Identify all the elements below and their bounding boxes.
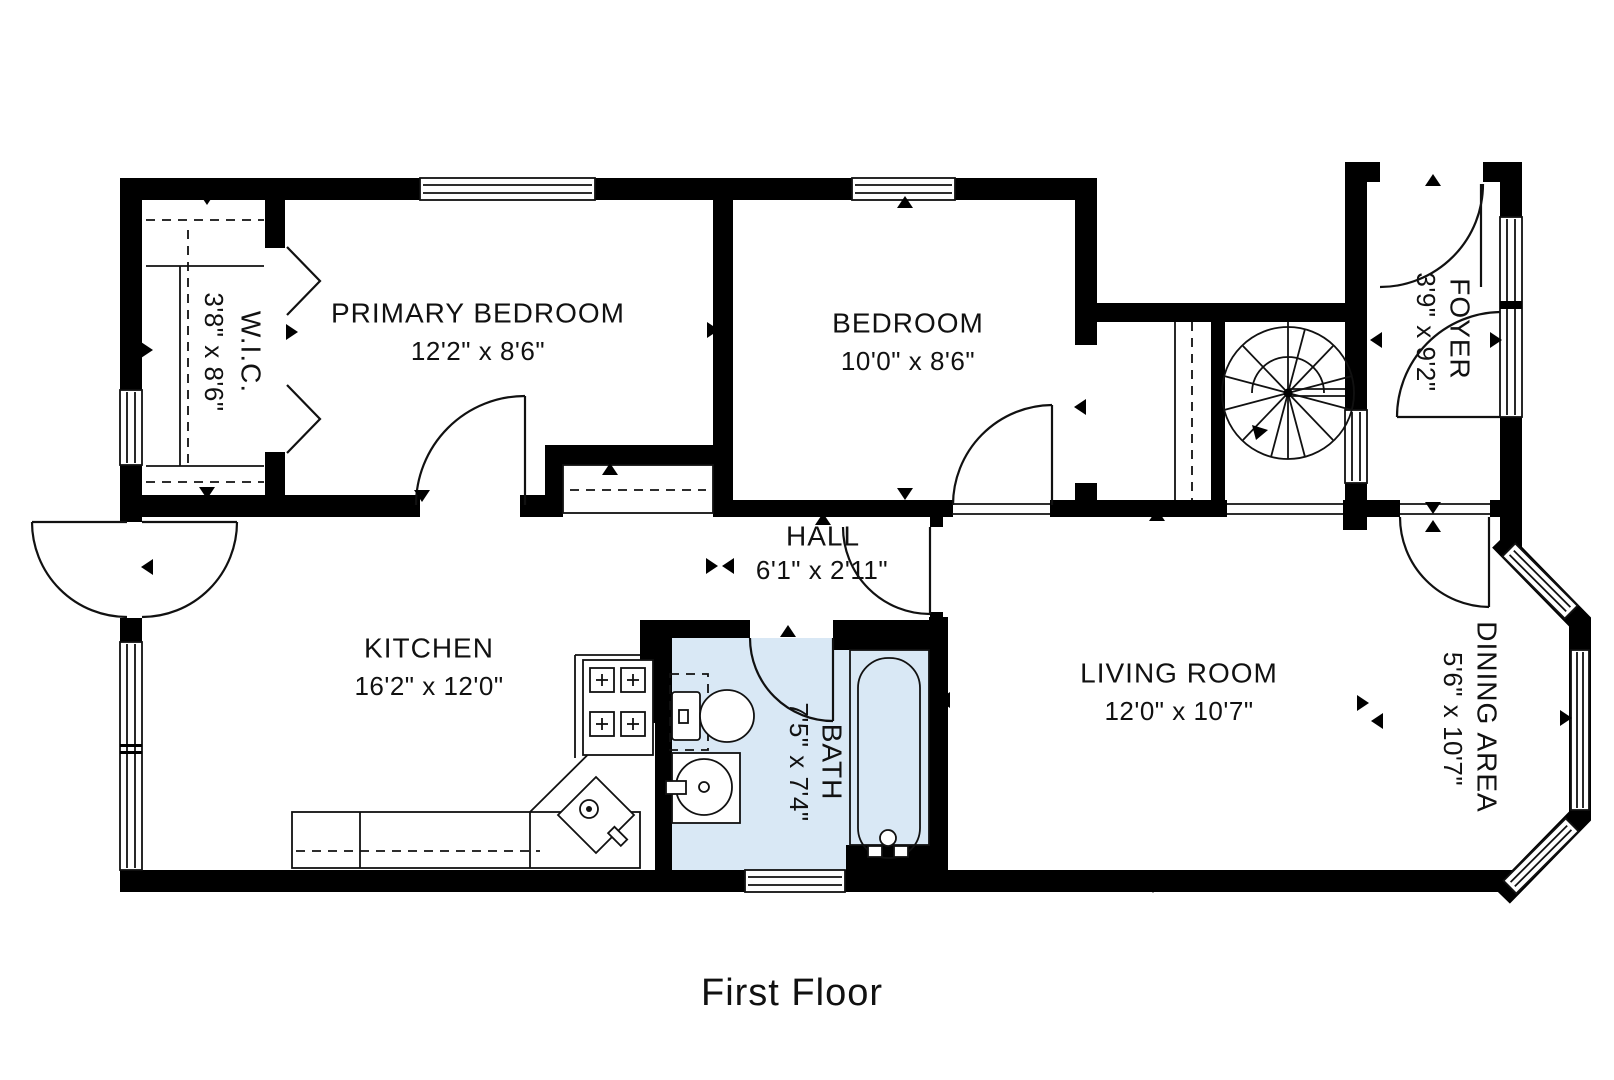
room-dims-living-room: 12'0" x 10'7" bbox=[1104, 696, 1253, 726]
room-label-hall: HALL bbox=[786, 521, 860, 552]
room-dims-foyer: 3'9" x 9'2" bbox=[1411, 272, 1441, 391]
room-dims-kitchen: 16'2" x 12'0" bbox=[354, 671, 503, 701]
window-bay-right bbox=[1571, 650, 1589, 810]
room-dims-primary-bedroom: 12'2" x 8'6" bbox=[411, 336, 545, 366]
door-wic-bifold bbox=[287, 247, 320, 453]
window-bedroom bbox=[852, 178, 955, 200]
room-label-wic: W.I.C. bbox=[236, 311, 267, 393]
hall-closet bbox=[563, 465, 713, 513]
room-label-living-room: LIVING ROOM bbox=[1080, 658, 1278, 689]
room-label-kitchen: KITCHEN bbox=[364, 633, 494, 664]
door-primary-bedroom bbox=[416, 396, 525, 505]
floor-plan-page: PRIMARY BEDROOM 12'2" x 8'6" BEDROOM 10'… bbox=[0, 0, 1614, 1080]
room-dims-hall: 6'1" x 2'11" bbox=[756, 555, 888, 585]
room-label-dining-area: DINING AREA bbox=[1472, 621, 1503, 812]
room-dims-bath: 7'5" x 7'4" bbox=[784, 702, 814, 821]
floor-plan: PRIMARY BEDROOM 12'2" x 8'6" BEDROOM 10'… bbox=[0, 0, 1614, 1080]
window-primary-bedroom bbox=[420, 178, 595, 200]
window-bay-lower bbox=[1504, 819, 1579, 894]
window-wic bbox=[120, 390, 142, 465]
room-label-primary-bedroom: PRIMARY BEDROOM bbox=[331, 298, 625, 329]
room-dims-dining-area: 5'6" x 10'7" bbox=[1438, 652, 1468, 786]
spiral-staircase bbox=[1222, 322, 1354, 459]
room-label-bedroom: BEDROOM bbox=[832, 308, 984, 339]
door-bedroom bbox=[953, 405, 1052, 505]
room-label-foyer: FOYER bbox=[1445, 278, 1476, 379]
room-dims-wic: 3'8" x 8'6" bbox=[199, 292, 229, 411]
straight-stair bbox=[1175, 322, 1192, 500]
window-bay-upper bbox=[1503, 544, 1578, 619]
floor-title: First Floor bbox=[701, 972, 883, 1014]
door-dining bbox=[1400, 517, 1489, 607]
room-label-bath: BATH bbox=[817, 724, 848, 801]
stove bbox=[583, 660, 653, 755]
room-dims-bedroom: 10'0" x 8'6" bbox=[841, 346, 975, 376]
window-kitchen-left bbox=[120, 642, 142, 870]
window-bath bbox=[745, 870, 845, 892]
bathroom-sink bbox=[666, 753, 740, 823]
window-foyer-right bbox=[1500, 217, 1522, 417]
